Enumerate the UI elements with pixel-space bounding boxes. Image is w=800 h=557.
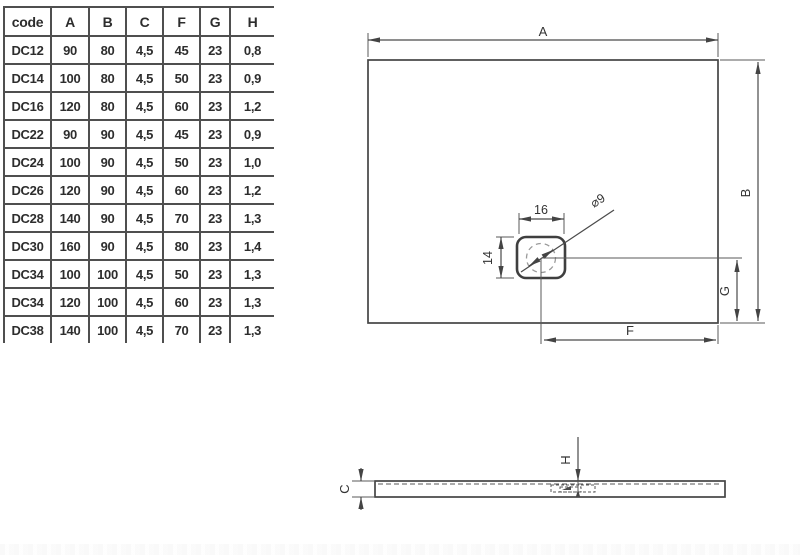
technical-drawing: A B 16 14 ⌀9 G [0, 0, 800, 557]
dim-label-f: F [626, 323, 634, 338]
dim-label-h: H [558, 455, 573, 464]
section-view-drawing: H C [337, 437, 725, 510]
dim-label-c: C [337, 484, 352, 493]
tray-outline [368, 60, 718, 323]
dim-label-16: 16 [534, 203, 548, 217]
dim-label-a: A [539, 24, 548, 39]
dim-label-g: G [717, 286, 732, 296]
dim-label-14: 14 [481, 251, 495, 265]
tray-profile [375, 481, 725, 497]
spec-sheet: code A B C F G H DC12 90 80 4,5 45 23 0,… [0, 0, 800, 557]
watermark-strip [0, 544, 800, 555]
plan-view-drawing: A B 16 14 ⌀9 G [368, 24, 765, 344]
dim-label-b: B [738, 189, 753, 198]
